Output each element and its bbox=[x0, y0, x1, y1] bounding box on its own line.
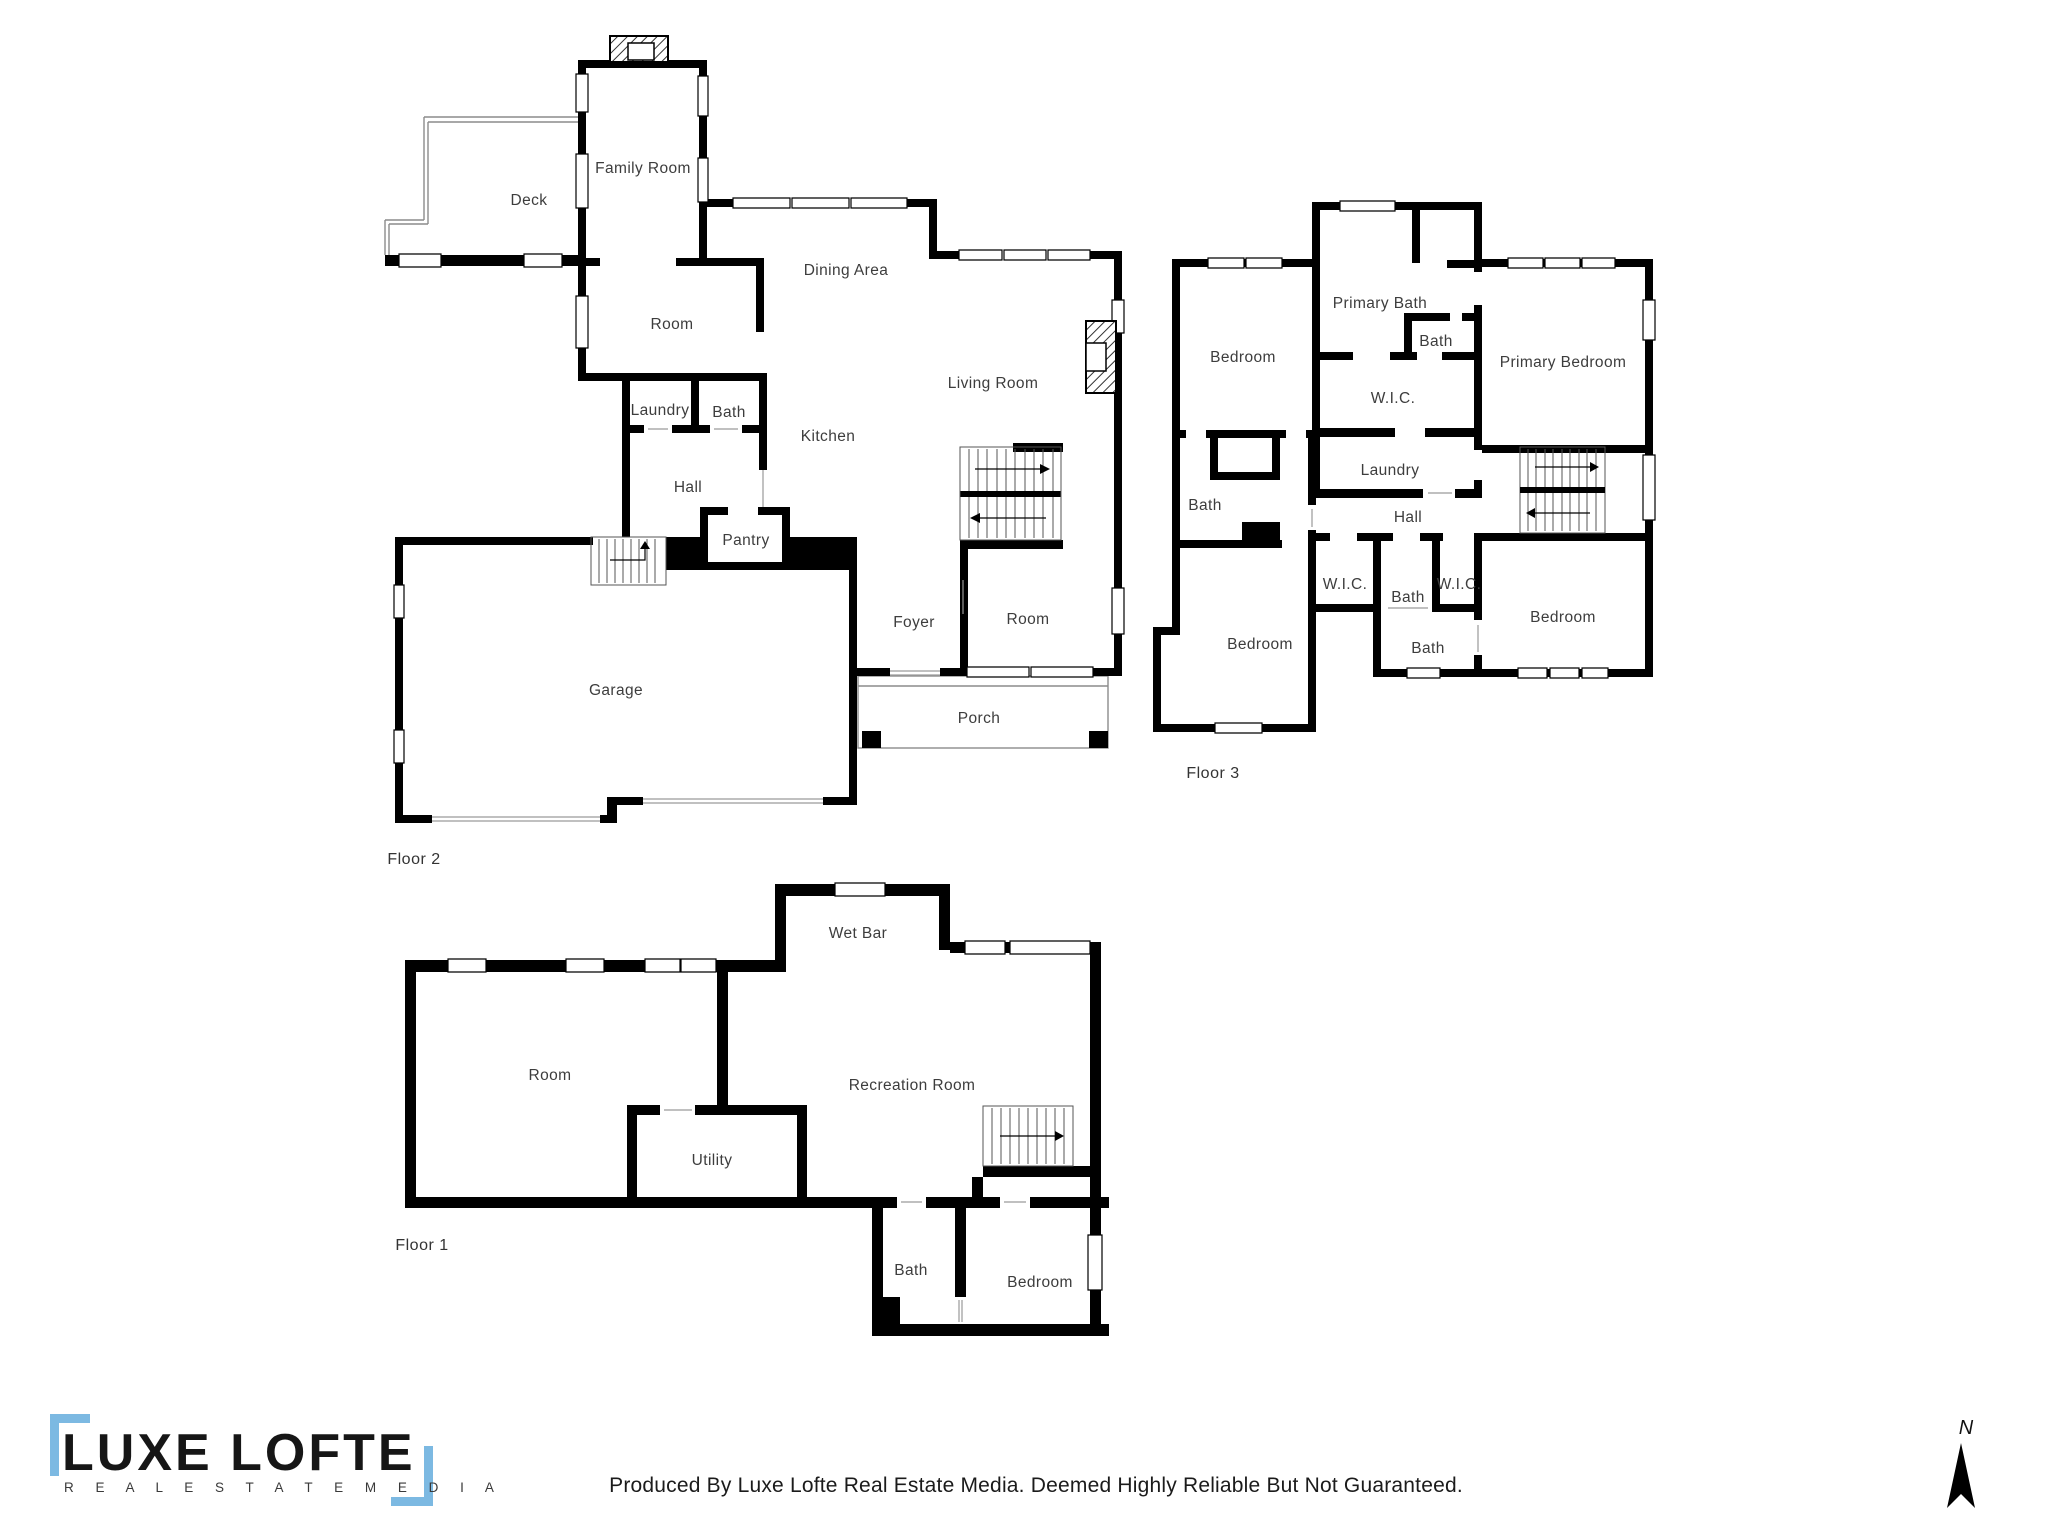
room-label-bath-lower: Bath bbox=[1411, 640, 1445, 657]
room-label-bath-small: Bath bbox=[1419, 333, 1453, 350]
logo-wordmark: LUXE LOFTE bbox=[62, 1424, 416, 1482]
room-label-bath-f2: Bath bbox=[712, 404, 746, 421]
room-label-kitchen: Kitchen bbox=[801, 428, 856, 445]
stairs-up-arrowhead bbox=[1040, 464, 1050, 474]
room-label-deck: Deck bbox=[511, 192, 548, 209]
room-label-porch: Porch bbox=[958, 710, 1001, 727]
room-label-wic-right: W.I.C. bbox=[1437, 576, 1482, 593]
room-label-room-lower: Room bbox=[1007, 611, 1050, 628]
interior-door-lines-floor2 bbox=[648, 429, 963, 614]
floor-1-plan: Wet Bar Room Recreation Room Utility Bat… bbox=[395, 883, 1109, 1336]
room-label-laundry-f3: Laundry bbox=[1361, 462, 1420, 479]
room-label-laundry-f2: Laundry bbox=[631, 402, 690, 419]
room-label-family-room: Family Room bbox=[595, 160, 691, 177]
interior-door-lines-floor1 bbox=[664, 1110, 1026, 1322]
floor-plan-drawing: Deck Family Room Dining Area Room Living… bbox=[0, 0, 2048, 1536]
chimney-firebox bbox=[628, 43, 654, 60]
room-label-hall-f3: Hall bbox=[1394, 509, 1422, 526]
room-label-dining-area: Dining Area bbox=[804, 262, 889, 279]
disclaimer-text: Produced By Luxe Lofte Real Estate Media… bbox=[609, 1474, 1463, 1497]
logo: LUXE LOFTE R E A L E S T A T E M E D I A bbox=[50, 1414, 503, 1506]
room-label-pantry: Pantry bbox=[722, 532, 769, 549]
floor-plan-canvas: Deck Family Room Dining Area Room Living… bbox=[0, 0, 2048, 1536]
room-label-bath-f1: Bath bbox=[894, 1262, 928, 1279]
room-label-room-upper: Room bbox=[651, 316, 694, 333]
room-label-utility: Utility bbox=[692, 1152, 733, 1169]
floor-2-plan: Deck Family Room Dining Area Room Living… bbox=[385, 36, 1124, 868]
stairs-up-arrowhead-floor3 bbox=[1590, 462, 1599, 472]
room-label-foyer: Foyer bbox=[893, 614, 935, 631]
fireplace-firebox bbox=[1086, 343, 1106, 371]
room-label-primary-bedroom: Primary Bedroom bbox=[1500, 354, 1627, 371]
north-arrow-icon bbox=[1947, 1443, 1975, 1508]
floor-3-plan: Bedroom Primary Bath Bath Primary Bedroo… bbox=[1153, 201, 1655, 782]
floor-plan-page: { "floors": [ { "label": "Floor 2", "roo… bbox=[0, 0, 2048, 1536]
garage-stairs-arrowhead bbox=[640, 541, 650, 549]
pantry-door-gap bbox=[728, 505, 758, 516]
stairs-down-arrowhead bbox=[970, 513, 980, 523]
room-label-bath-left: Bath bbox=[1188, 497, 1222, 514]
logo-tagline: R E A L E S T A T E M E D I A bbox=[64, 1480, 503, 1495]
room-label-primary-bath: Primary Bath bbox=[1333, 295, 1427, 312]
room-label-bedroom-br: Bedroom bbox=[1530, 609, 1596, 626]
stairs-down-arrowhead-floor3 bbox=[1526, 508, 1535, 518]
floor-2-walls bbox=[385, 60, 1122, 823]
room-label-room-f1: Room bbox=[529, 1067, 572, 1084]
room-label-bedroom-bl: Bedroom bbox=[1227, 636, 1293, 653]
room-label-recreation-room: Recreation Room bbox=[849, 1077, 976, 1094]
stairs-arrowhead-floor1 bbox=[1055, 1131, 1064, 1141]
room-label-garage: Garage bbox=[589, 682, 643, 699]
room-label-wet-bar: Wet Bar bbox=[829, 925, 888, 942]
deck-outline bbox=[385, 117, 578, 255]
floor-3-label: Floor 3 bbox=[1186, 765, 1239, 782]
north-label: N bbox=[1959, 1417, 1974, 1439]
room-label-bedroom-tl: Bedroom bbox=[1210, 349, 1276, 366]
floor-2-label: Floor 2 bbox=[387, 851, 440, 868]
stairs-divider-floor3 bbox=[1520, 487, 1605, 493]
compass: N bbox=[1947, 1417, 1975, 1508]
room-label-wic-left: W.I.C. bbox=[1323, 576, 1368, 593]
room-label-bedroom-f1: Bedroom bbox=[1007, 1274, 1073, 1291]
room-label-bath-mid: Bath bbox=[1391, 589, 1425, 606]
front-door-lines bbox=[890, 671, 940, 675]
room-label-living-room: Living Room bbox=[948, 375, 1039, 392]
floor-1-label: Floor 1 bbox=[395, 1237, 448, 1254]
room-label-wic-main: W.I.C. bbox=[1371, 390, 1416, 407]
room-label-hall-f2: Hall bbox=[674, 479, 702, 496]
